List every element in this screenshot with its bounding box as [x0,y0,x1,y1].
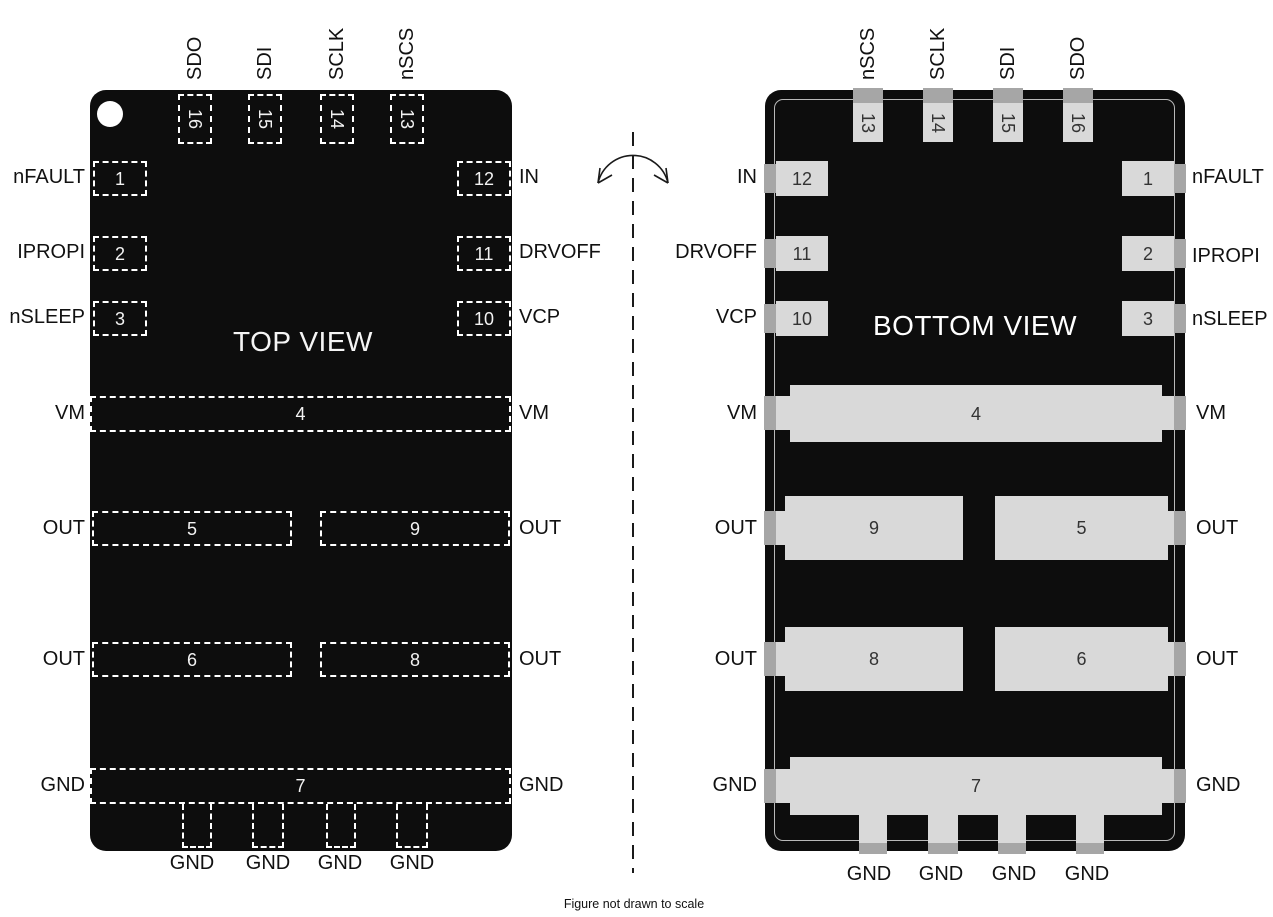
top-view-title: TOP VIEW [193,326,413,358]
pin-1-number: 1 [1143,170,1153,188]
gnd-tab-label: GND [310,852,370,874]
gnd-tab-label: GND [910,863,972,885]
top-view-package [90,90,512,851]
pin-13-number: 13 [398,109,416,129]
pin-13: 13 [853,103,883,142]
pin-label-sdo: SDO [185,10,205,80]
pin-9-number: 9 [410,520,420,538]
pin-12: 12 [776,161,828,196]
pin-7: 7 [790,757,1162,815]
pin-6-edge-tab [1174,642,1186,676]
pin-5: 5 [92,511,292,546]
pin-16: 16 [1063,103,1093,142]
pin-13-edge-tab [853,88,883,103]
pin-11-edge-tab [764,239,776,268]
pin-7-gnd-edge-tab [859,843,887,854]
pin-1-number: 1 [115,170,125,188]
pin-7-left-edge-tab [764,769,776,803]
pin-label-vcp: VCP [519,306,560,328]
pin-7-gnd-leg [1076,815,1104,843]
pin-label-out-row2-right: OUT [1196,648,1238,670]
pin-14-number: 14 [328,109,346,129]
pin-11-number: 11 [793,245,812,263]
pin-5: 5 [995,496,1168,560]
pin-label-gnd-right: GND [1196,774,1240,796]
pin-label-drvoff: DRVOFF [600,241,757,263]
pin-label-ipropi: IPROPI [0,241,85,263]
pin-6: 6 [995,627,1168,691]
pin-label-nfault: nFAULT [1192,166,1264,188]
pin-label-nsleep: nSLEEP [1192,308,1268,330]
pin-2-edge-tab [1174,239,1186,268]
pin-4: 4 [90,396,511,432]
pin-15: 15 [993,103,1023,142]
pin-label-ipropi: IPROPI [1192,245,1260,267]
pin-12-number: 12 [474,170,494,188]
pin-12-edge-tab [764,164,776,193]
pin-9: 9 [320,511,510,546]
pin-label-vm-right: VM [519,402,549,424]
pin-4-right-edge-tab [1174,396,1186,430]
gnd-tab-label: GND [838,863,900,885]
pin-6-number: 6 [1076,650,1086,668]
pin-7-gnd-leg [928,815,958,843]
pin-7-number: 7 [295,777,305,795]
pin-7-gnd-edge-tab [1076,843,1104,854]
pin-2: 2 [1122,236,1174,271]
pin-4-right-neck [1160,396,1174,430]
pin-14: 14 [923,103,953,142]
pin-7-gnd-tab [326,804,356,848]
pin-9-number: 9 [869,519,879,537]
pin-label-vm-left: VM [0,402,85,424]
pin-7-gnd-tab [182,804,212,848]
pin-label-out-row1-left: OUT [600,517,757,539]
pin-4-left-edge-tab [764,396,776,430]
pin-label-in: IN [519,166,539,188]
pin-1: 1 [1122,161,1174,196]
flip-horizontal-axis-icon [555,120,715,880]
pin-label-gnd-left: GND [600,774,757,796]
pin-label-sclk: SCLK [327,10,347,80]
pin-11: 11 [776,236,828,271]
pin-15-number: 15 [999,112,1017,132]
figure-caption: Figure not drawn to scale [534,897,734,911]
pin-6-number: 6 [187,651,197,669]
gnd-tab-label: GND [1056,863,1118,885]
pin-16-number: 16 [1069,112,1087,132]
pin-10: 10 [457,301,511,336]
pin-5-number: 5 [187,520,197,538]
pin-7-number: 7 [971,777,981,795]
pin-label-nscs: nSCS [397,10,417,80]
pin-label-out-row2-left: OUT [600,648,757,670]
pin-label-out-row2-left: OUT [0,648,85,670]
pin-10-number: 10 [792,310,812,328]
pin-4: 4 [790,385,1162,442]
pin-label-nsleep: nSLEEP [0,306,85,328]
pin-11: 11 [457,236,511,271]
pin-3-number: 3 [1143,310,1153,328]
pin-15-edge-tab [993,88,1023,103]
pin-10-number: 10 [474,310,494,328]
package-inner-outline [774,99,1175,841]
pin-7-right-edge-tab [1174,769,1186,803]
pin-8-number: 8 [869,650,879,668]
pin-label-sdi: SDI [255,10,275,80]
pin-4-number: 4 [295,405,305,423]
pin-14-edge-tab [923,88,953,103]
pin-14-number: 14 [929,112,947,132]
pin-8-number: 8 [410,651,420,669]
pin-16: 16 [178,94,212,144]
pin-4-number: 4 [971,405,981,423]
pin-15: 15 [248,94,282,144]
pin-5-number: 5 [1076,519,1086,537]
pin-label-nscs: nSCS [858,10,878,80]
pin-3-number: 3 [115,310,125,328]
pin-7-gnd-tab [396,804,428,848]
pin-label-sclk: SCLK [928,10,948,80]
pin-5-edge-tab [1174,511,1186,545]
pin-16-edge-tab [1063,88,1093,103]
pin-16-number: 16 [186,109,204,129]
pin-6-neck [1166,642,1174,676]
pin-label-vm-right: VM [1196,402,1226,424]
pin-10: 10 [776,301,828,336]
pin-label-nfault: nFAULT [0,166,85,188]
bottom-view-package [765,90,1185,851]
pin-7-gnd-leg [998,815,1026,843]
pin-14: 14 [320,94,354,144]
pin-label-gnd-left: GND [0,774,85,796]
pin-label-out-row1-right: OUT [1196,517,1238,539]
pin-15-number: 15 [256,109,274,129]
pin-5-neck [1166,511,1174,545]
pin-7-gnd-edge-tab [998,843,1026,854]
pin-13-number: 13 [859,112,877,132]
gnd-tab-label: GND [983,863,1045,885]
pin-label-out-row1-left: OUT [0,517,85,539]
gnd-tab-label: GND [162,852,222,874]
pin-2-number: 2 [1143,245,1153,263]
pin-label-vcp: VCP [600,306,757,328]
gnd-tab-label: GND [238,852,298,874]
bottom-view-title: BOTTOM VIEW [855,310,1095,342]
pin-7: 7 [90,768,511,804]
pin-8: 8 [785,627,963,691]
pin-3-edge-tab [1174,304,1186,333]
pin-9-edge-tab [764,511,776,545]
pin-label-vm-left: VM [600,402,757,424]
pin1-indicator-dot [97,101,123,127]
pin-12: 12 [457,161,511,196]
pin-11-number: 11 [475,245,494,263]
gnd-tab-label: GND [382,852,442,874]
pin-label-sdi: SDI [998,10,1018,80]
pin-2: 2 [93,236,147,271]
pin-label-sdo: SDO [1068,10,1088,80]
pin-10-edge-tab [764,304,776,333]
pin-3: 3 [1122,301,1174,336]
pin-8-edge-tab [764,642,776,676]
pin-7-gnd-edge-tab [928,843,958,854]
pin-9: 9 [785,496,963,560]
pin-8: 8 [320,642,510,677]
pin-1: 1 [93,161,147,196]
pin-7-gnd-tab [252,804,284,848]
pin-7-gnd-leg [859,815,887,843]
pin-13: 13 [390,94,424,144]
pin-label-in: IN [600,166,757,188]
pin-12-number: 12 [792,170,812,188]
pin-1-edge-tab [1174,164,1186,193]
pinout-diagram: TOP VIEW SDO SDI SCLK nSCS 16 15 14 13 n… [0,0,1273,917]
pin-6: 6 [92,642,292,677]
pin-7-right-neck [1160,769,1174,803]
pin-3: 3 [93,301,147,336]
pin-2-number: 2 [115,245,125,263]
